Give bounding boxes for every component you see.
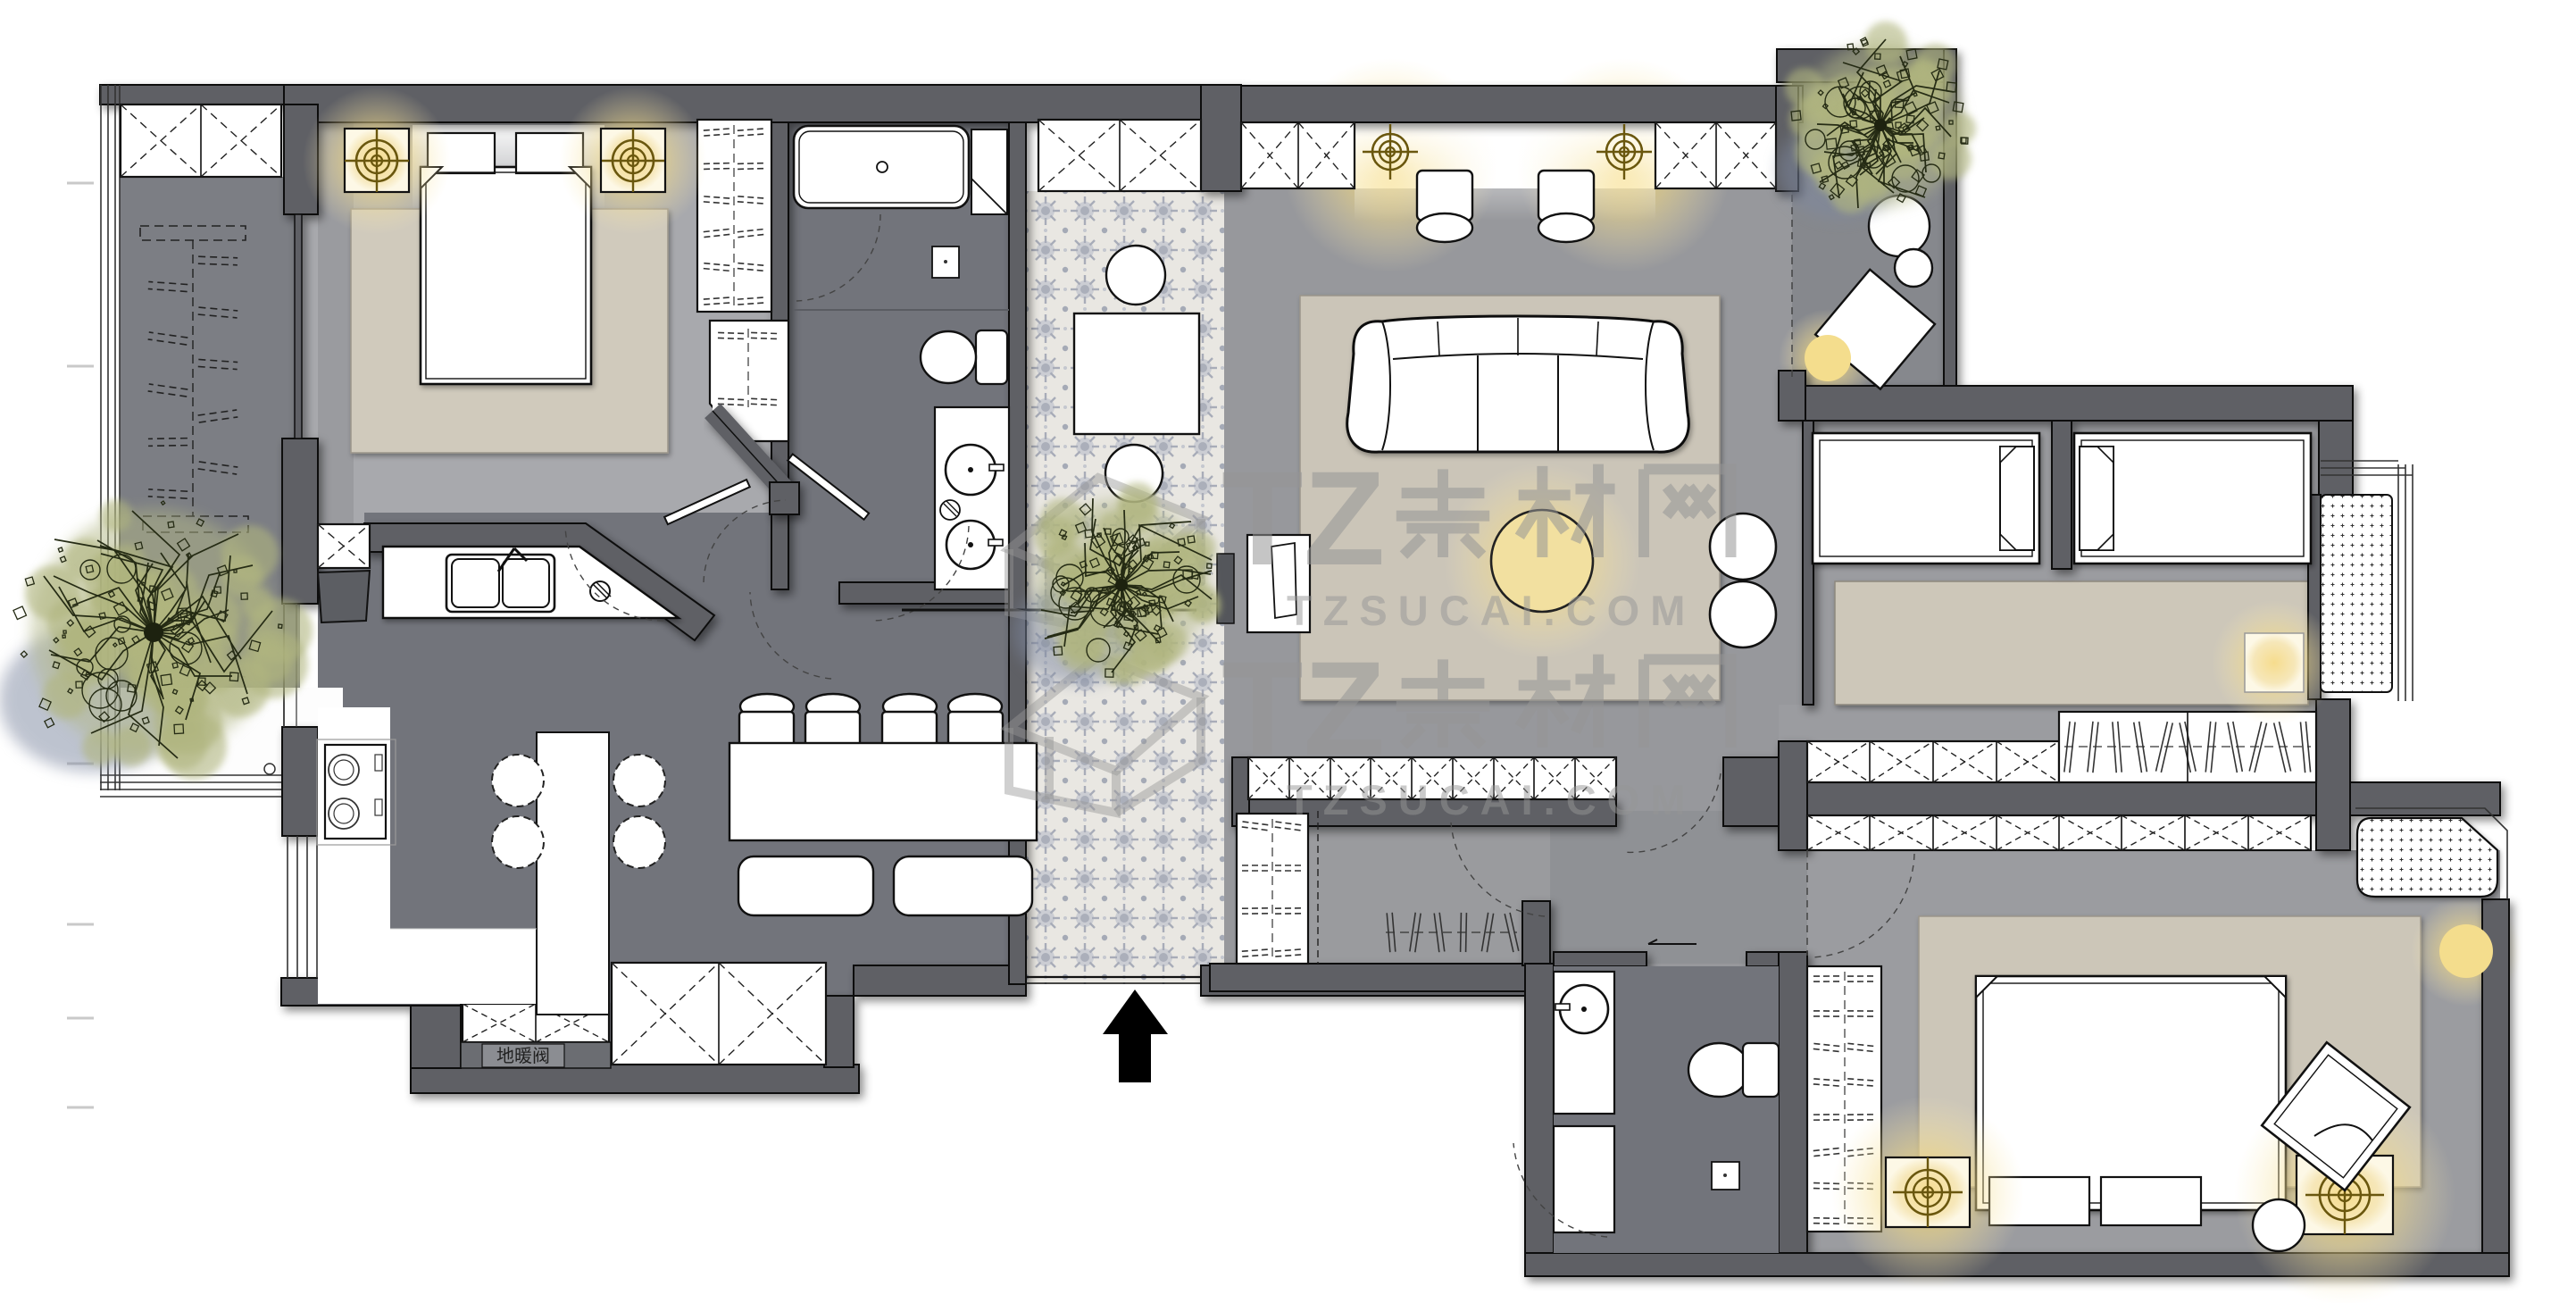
svg-text:TZSUCAI.COM: TZSUCAI.COM <box>1287 587 1696 634</box>
svg-text:地暖阀: 地暖阀 <box>496 1046 550 1066</box>
svg-text:TZSUCAI.COM: TZSUCAI.COM <box>1287 776 1696 823</box>
svg-text:TZ: TZ <box>1221 443 1385 593</box>
svg-text:TZ: TZ <box>1221 633 1385 783</box>
